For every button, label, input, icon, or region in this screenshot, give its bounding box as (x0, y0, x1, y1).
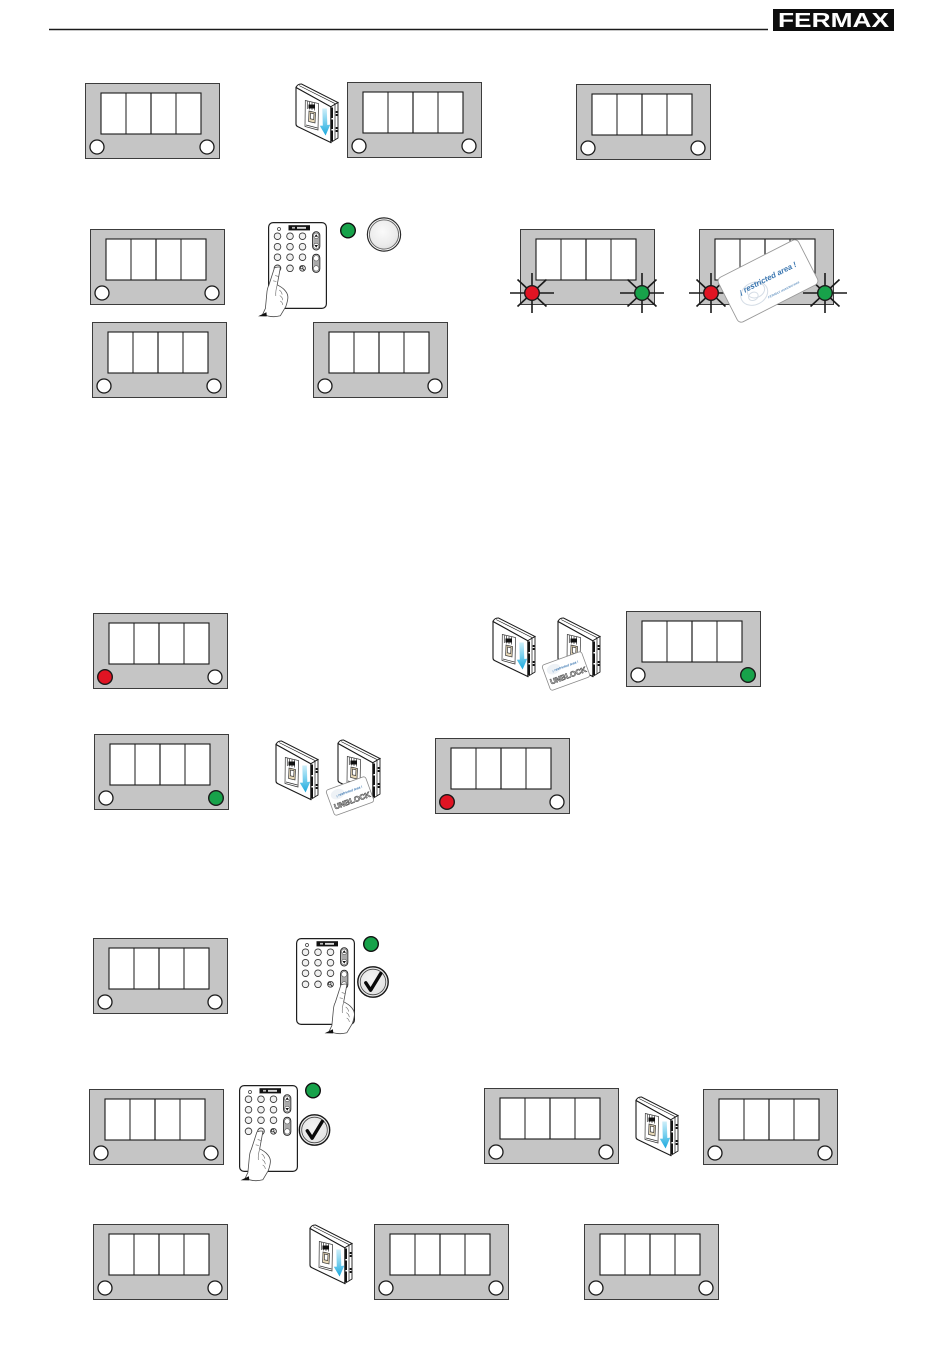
svg-text:FERMAX: FERMAX (778, 9, 889, 32)
